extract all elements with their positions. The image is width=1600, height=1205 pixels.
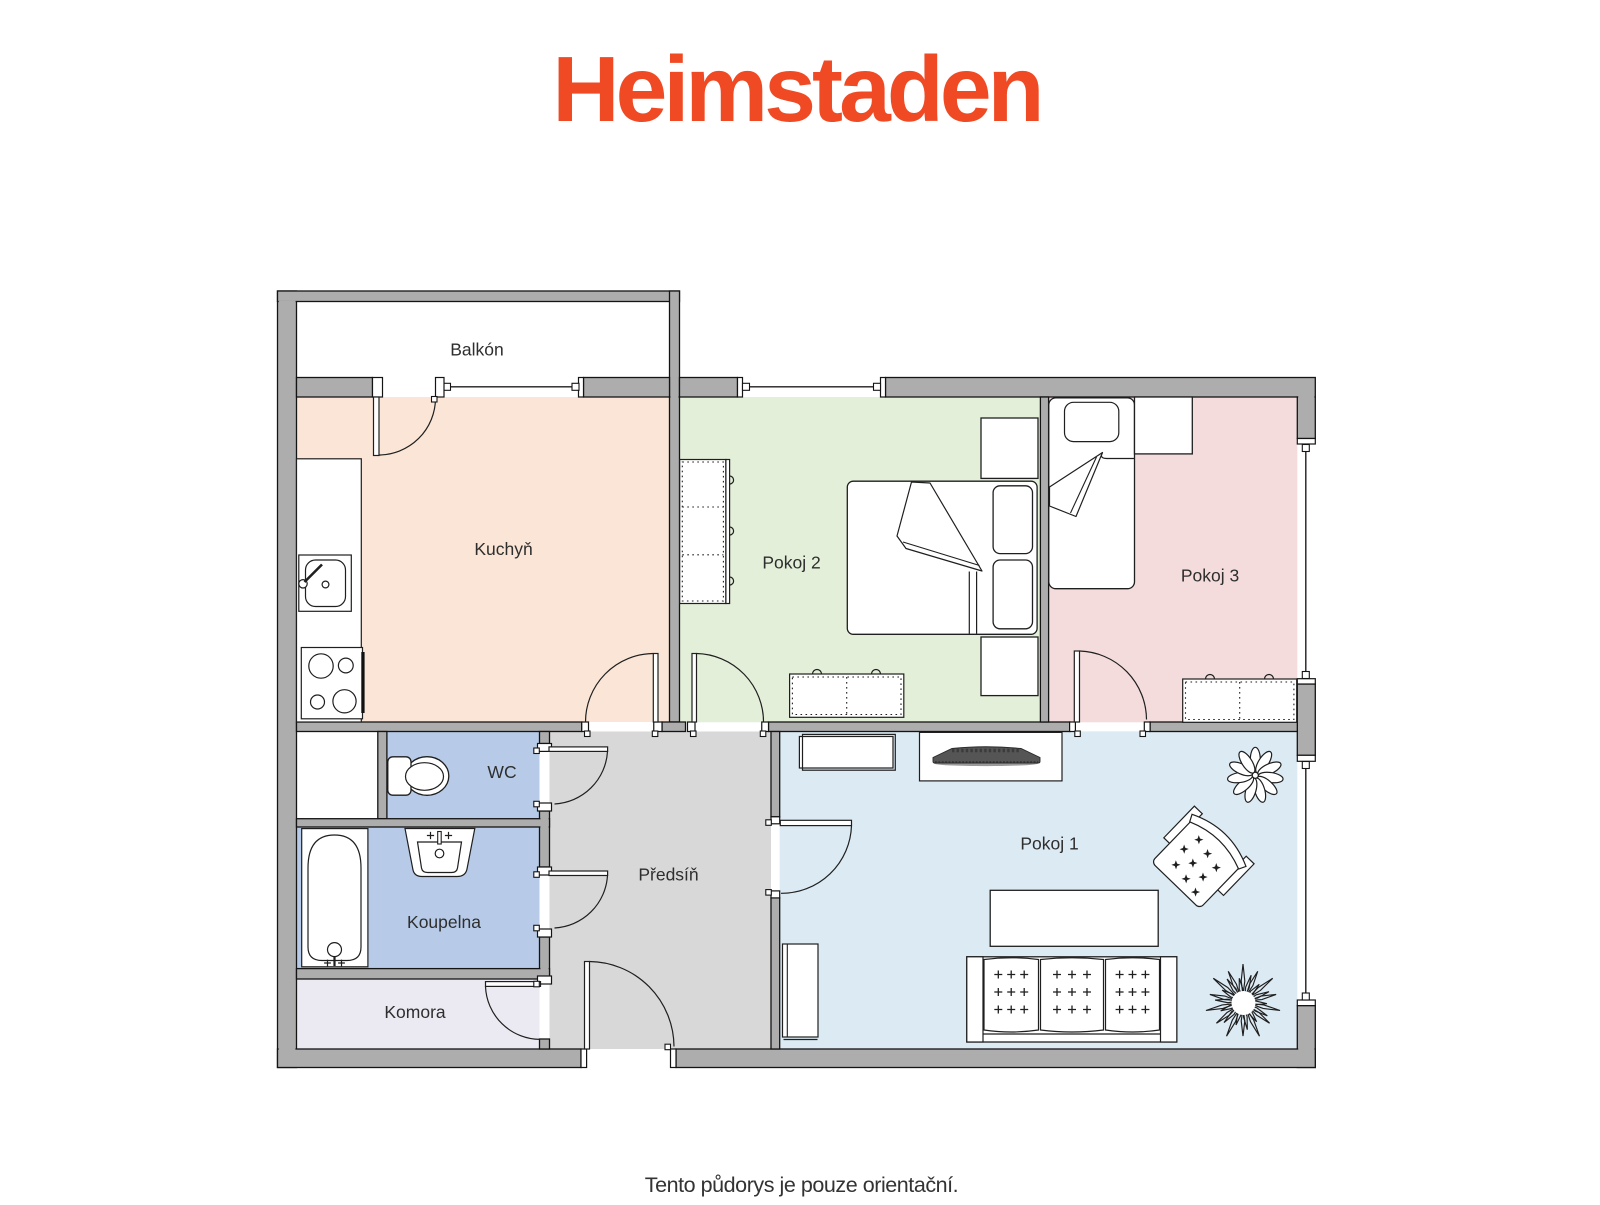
svg-text:Koupelna: Koupelna [407,912,481,932]
svg-text:Tento půdorys je pouze orienta: Tento půdorys je pouze orientační. [645,1173,958,1197]
svg-text:Kuchyň: Kuchyň [474,539,532,559]
svg-text:Pokoj 1: Pokoj 1 [1020,834,1078,854]
svg-text:Předsíň: Předsíň [638,865,698,885]
svg-text:WC: WC [487,762,516,782]
svg-text:Pokoj 2: Pokoj 2 [762,553,820,573]
svg-text:Heimstaden: Heimstaden [552,37,1040,141]
svg-text:Komora: Komora [384,1002,446,1022]
svg-text:Balkón: Balkón [450,340,504,360]
svg-text:Pokoj 3: Pokoj 3 [1181,566,1239,586]
